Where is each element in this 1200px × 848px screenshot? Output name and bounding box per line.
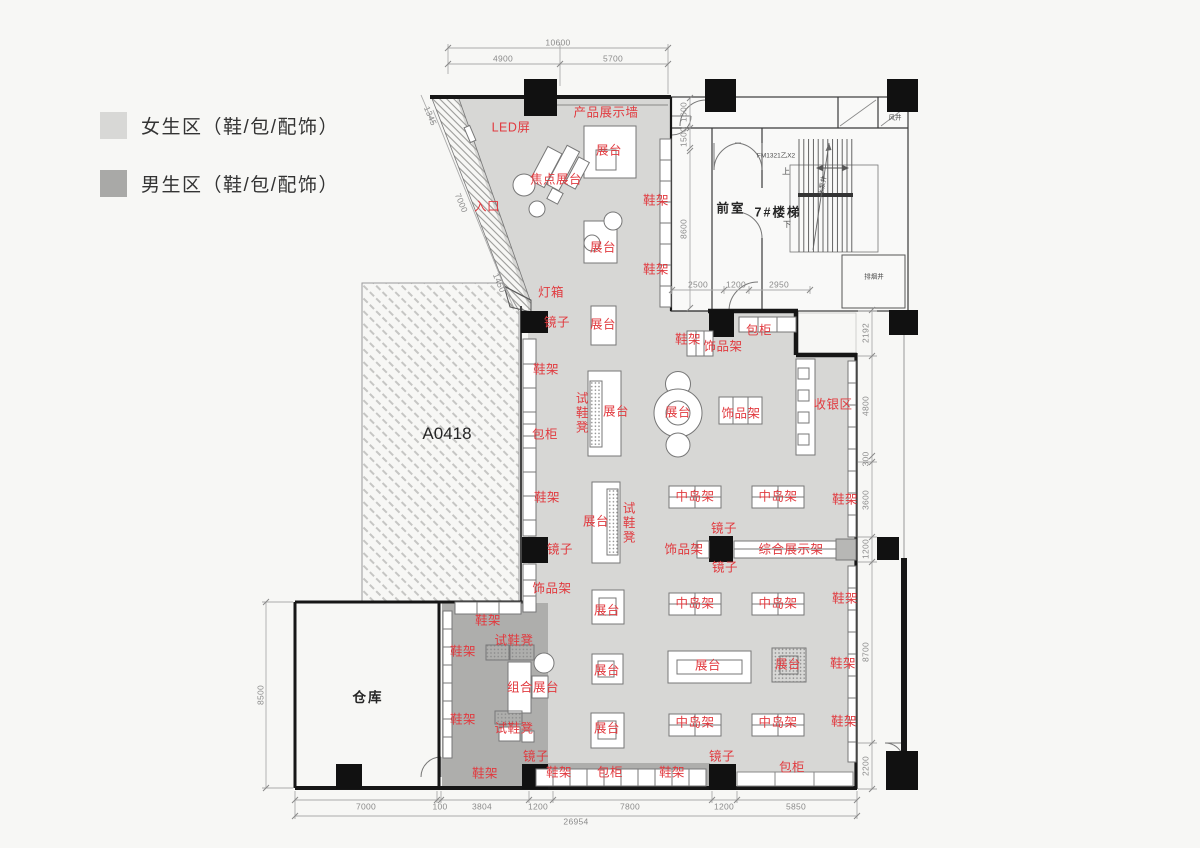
floor-plan-drawing: [0, 0, 1200, 848]
floor-plan-canvas: 女生区（鞋/包/配饰） 男生区（鞋/包/配饰）: [0, 0, 1200, 848]
void-area-a0418: [362, 283, 519, 602]
